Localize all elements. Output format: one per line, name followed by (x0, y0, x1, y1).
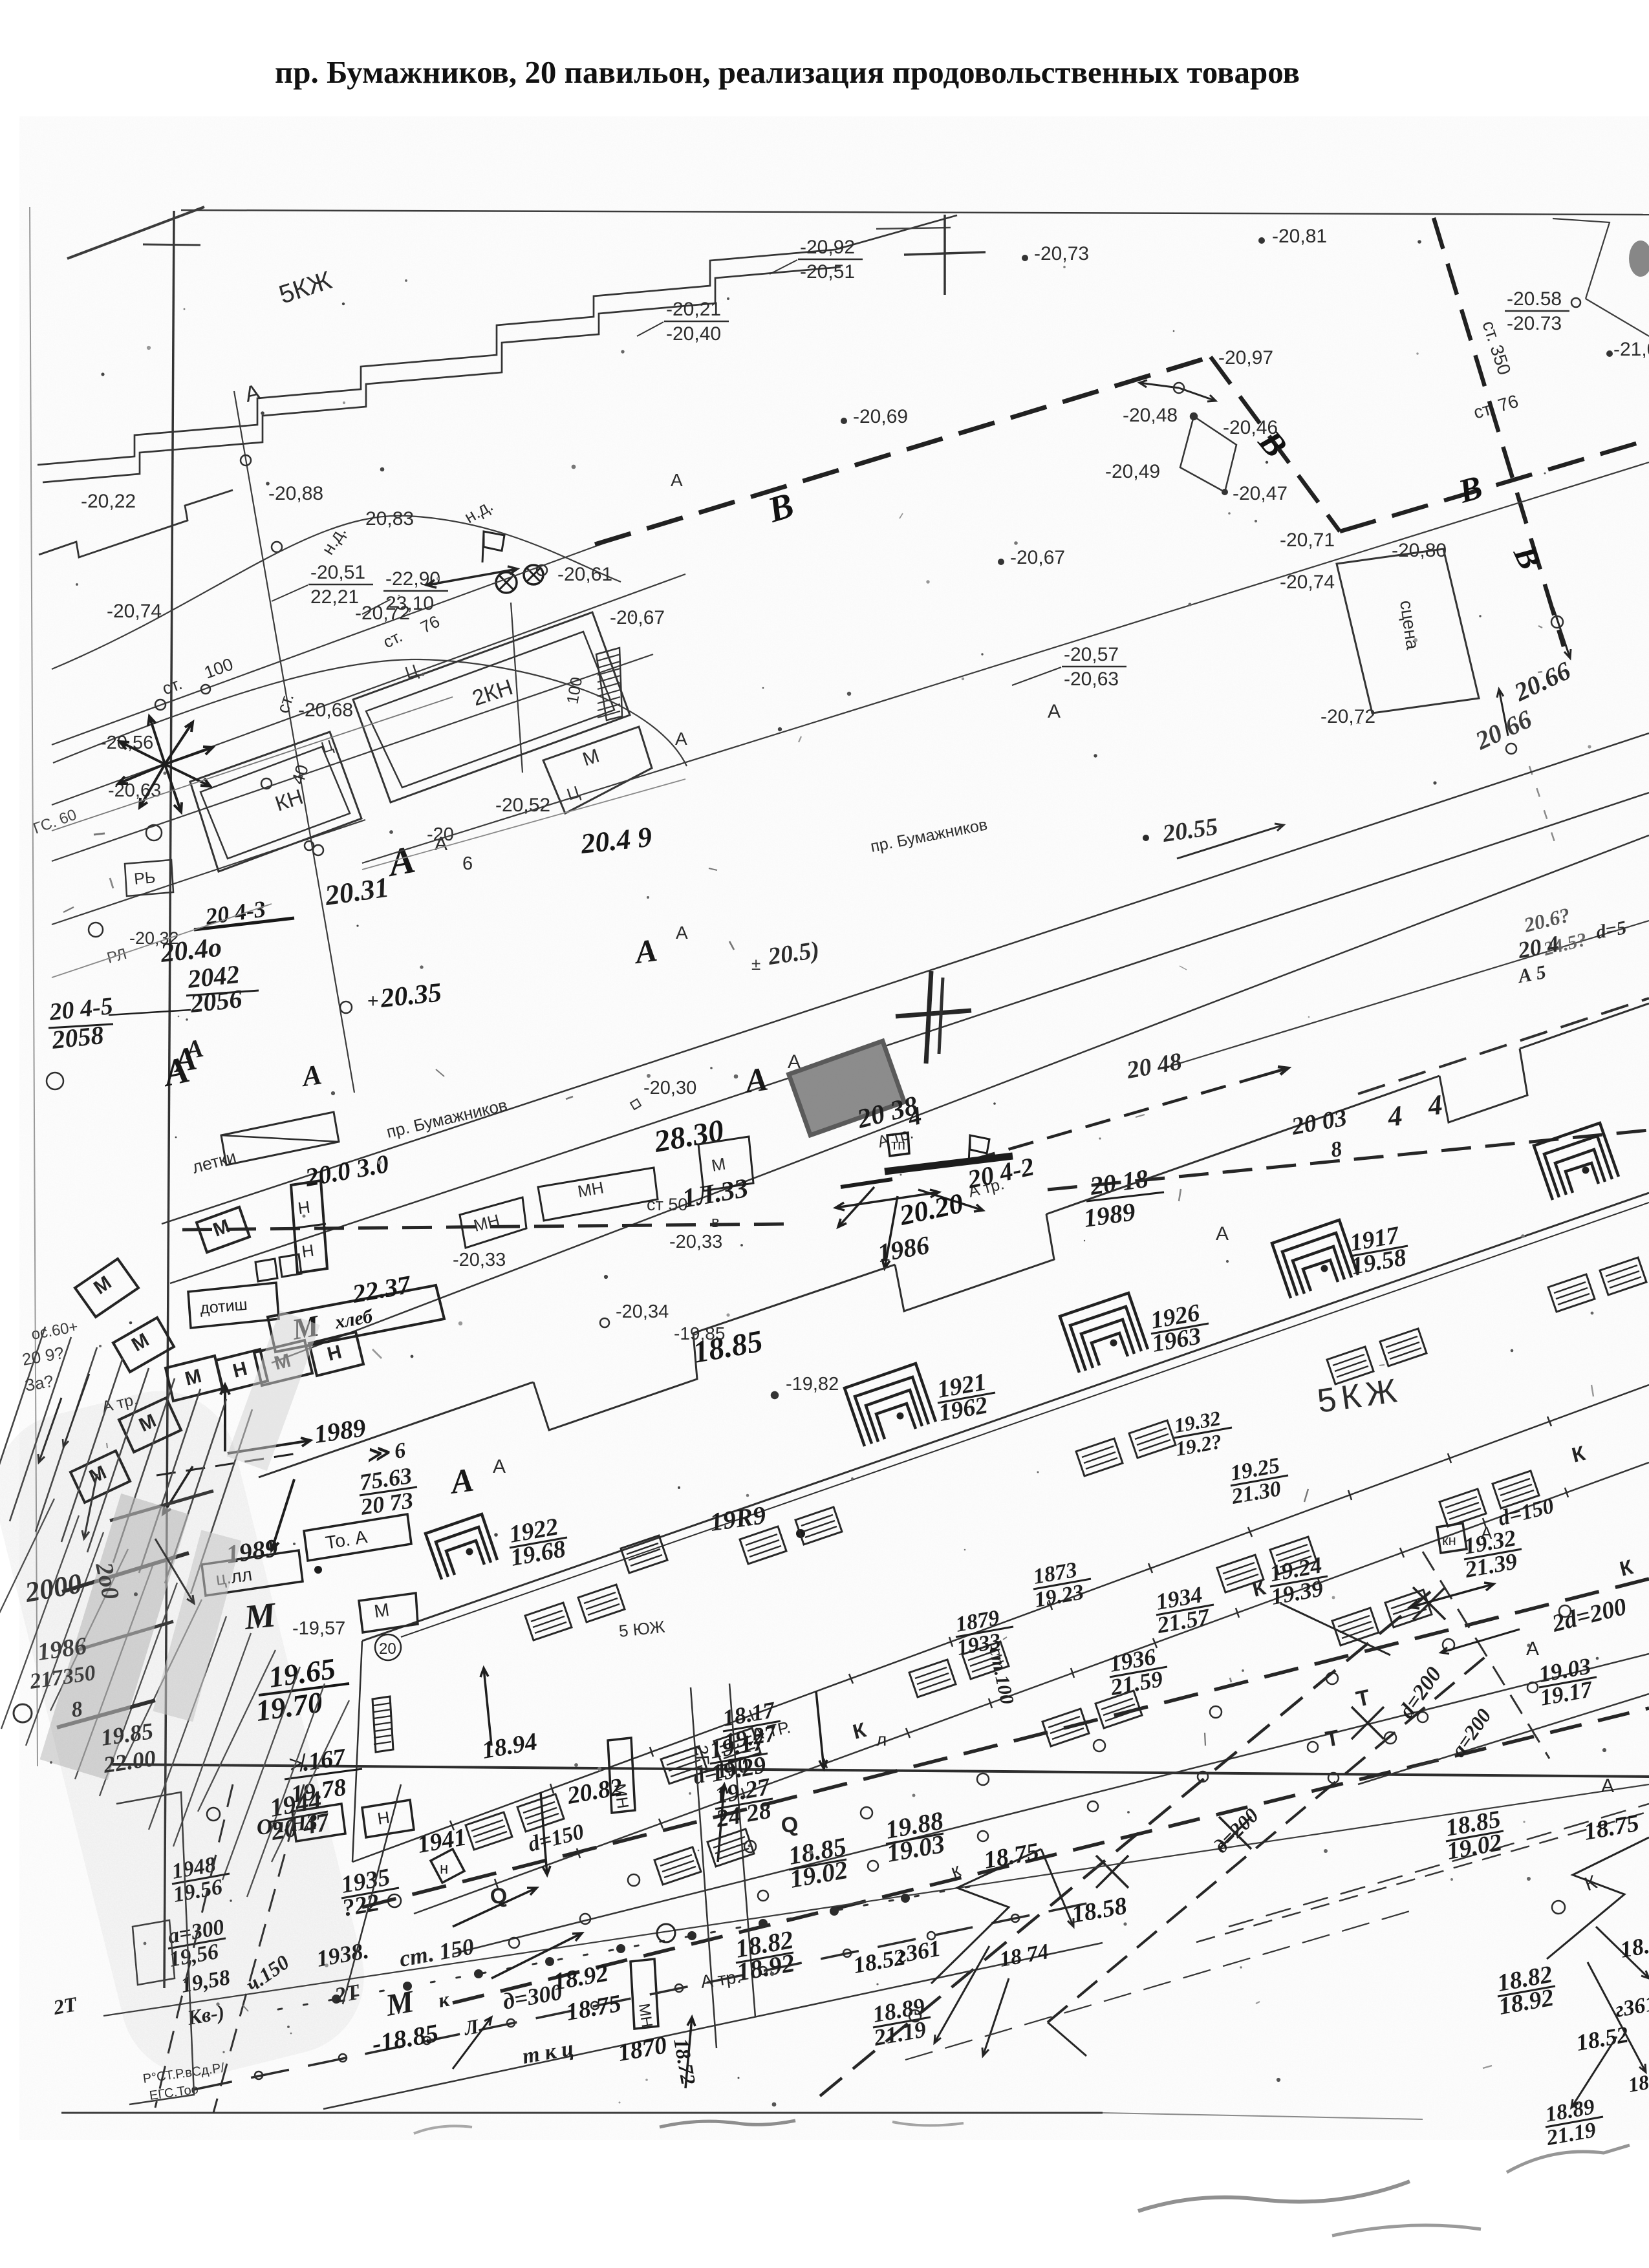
svg-text:пр. Бумажников, 20 павильон, р: пр. Бумажников, 20 павильон, реализация … (275, 54, 1300, 90)
